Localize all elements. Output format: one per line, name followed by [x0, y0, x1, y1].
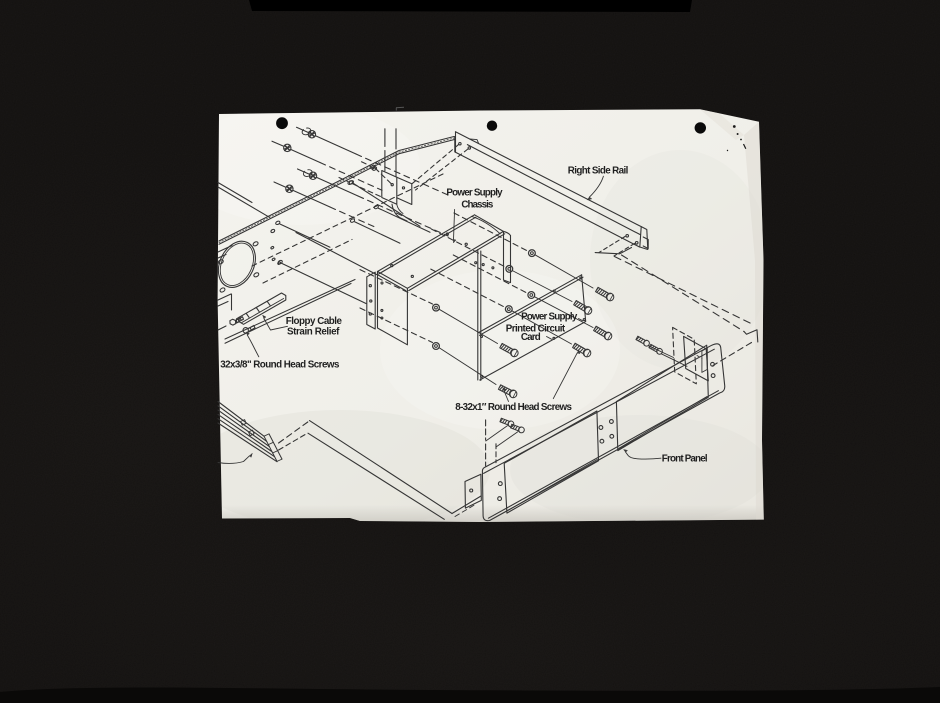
svg-text:Chassis: Chassis — [461, 200, 493, 211]
svg-text:Right Side Rail: Right Side Rail — [568, 166, 629, 177]
svg-text:Power Supply: Power Supply — [446, 187, 503, 198]
svg-text:Card: Card — [521, 332, 541, 343]
svg-text:Strain Relief: Strain Relief — [287, 326, 340, 337]
svg-text:8-32x1″ Round Head Screws: 8-32x1″ Round Head Screws — [455, 402, 572, 413]
svg-text:32x3/8" Round Head Screws: 32x3/8" Round Head Screws — [220, 360, 340, 371]
svg-text:Power Supply: Power Supply — [521, 312, 578, 323]
svg-text:Front Panel: Front Panel — [662, 454, 708, 465]
